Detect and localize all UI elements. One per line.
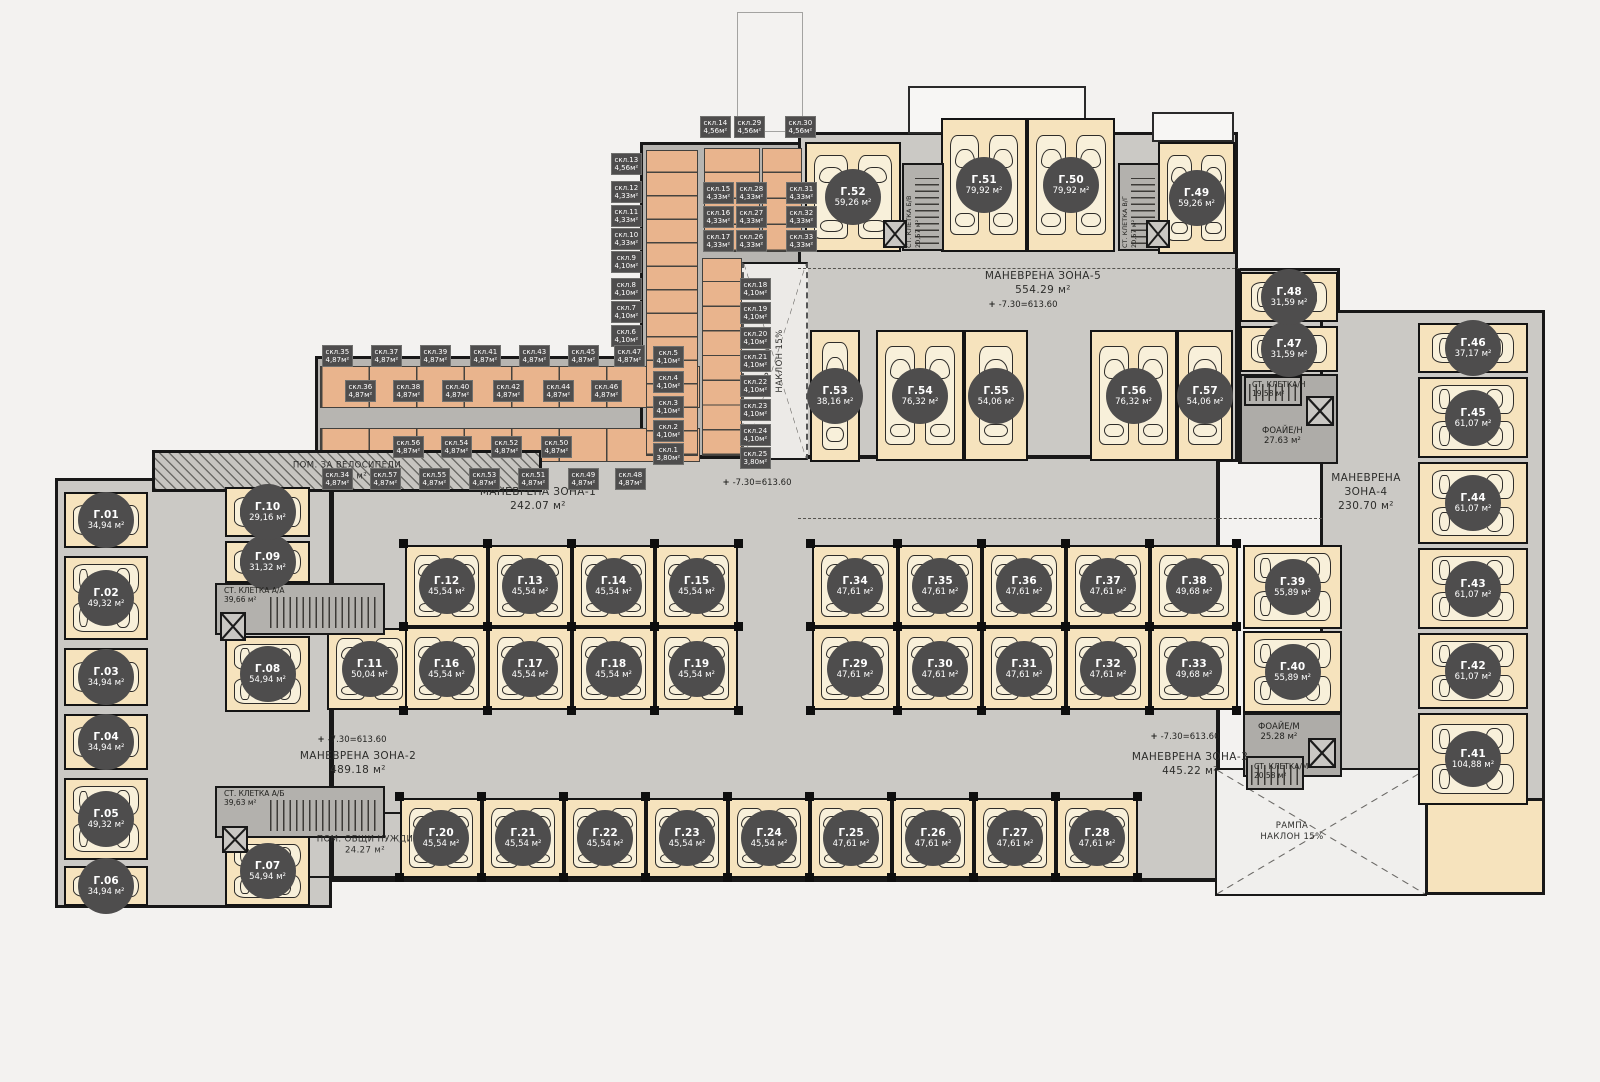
zone-label: МАНЕВРЕНА ЗОНА-5554.29 м² bbox=[985, 269, 1101, 297]
garage-label: Г.5554,06 м² bbox=[968, 368, 1024, 424]
garage-area: 47,61 м² bbox=[1006, 670, 1043, 680]
storage-id: скл.48 bbox=[619, 471, 643, 480]
storage-area: 4,87м² bbox=[545, 447, 569, 456]
garage-area: 59,26 м² bbox=[1178, 199, 1215, 209]
foyer-label-name: ФОАЙЕ/М bbox=[1258, 722, 1300, 732]
storage-tag: скл.24,10м² bbox=[653, 420, 684, 442]
storage-area: 4,87м² bbox=[374, 479, 398, 488]
garage-id: Г.04 bbox=[93, 731, 118, 743]
storage-tag: скл.364,87м² bbox=[345, 380, 376, 402]
garage-id: Г.36 bbox=[1011, 575, 1036, 587]
storage-id: скл.18 bbox=[744, 281, 768, 290]
garage-area: 47,61 м² bbox=[997, 839, 1034, 849]
zone-label-line: 230.70 м² bbox=[1331, 499, 1401, 513]
storage-tag: скл.354,87м² bbox=[322, 345, 353, 367]
garage-id: Г.30 bbox=[927, 658, 952, 670]
storage-tag: скл.554,87м² bbox=[419, 468, 450, 490]
storage-tag: скл.484,87м² bbox=[615, 468, 646, 490]
storage-tag: скл.564,87м² bbox=[393, 436, 424, 458]
stair-label-area: 19,58 м² bbox=[1252, 389, 1306, 398]
storage-id: скл.45 bbox=[572, 348, 596, 357]
garage-id: Г.35 bbox=[927, 575, 952, 587]
garage-id: Г.27 bbox=[1002, 827, 1027, 839]
foyer-label-area: 27.63 м² bbox=[1262, 436, 1303, 446]
storage-tag: скл.94,10м² bbox=[611, 251, 642, 273]
storage-id: скл.28 bbox=[740, 185, 764, 194]
garage-label: Г.0549,32 м² bbox=[78, 791, 134, 847]
garage-label: Г.3047,61 м² bbox=[912, 641, 968, 697]
storage-id: скл.12 bbox=[615, 184, 639, 193]
storage-tag: скл.74,10м² bbox=[611, 301, 642, 323]
garage-label: Г.4461,07 м² bbox=[1445, 475, 1501, 531]
floor-plan: РАМПА НАКЛОН 15%РАМПА НАКЛОН 15%ПОМ. ЗА … bbox=[0, 0, 1600, 1082]
garage-id: Г.38 bbox=[1181, 575, 1206, 587]
structural-column bbox=[567, 539, 576, 548]
garage-label: Г.2445,54 м² bbox=[741, 810, 797, 866]
storage-area: 3,80м² bbox=[744, 458, 768, 467]
garage-area: 47,61 м² bbox=[1090, 670, 1127, 680]
stair-label-name: СТ. КЛЕТКА А/Б bbox=[224, 789, 285, 798]
garage-area: 104,88 м² bbox=[1452, 760, 1494, 770]
storage-area: 4,33м² bbox=[615, 192, 639, 201]
storage-id: скл.33 bbox=[790, 233, 814, 242]
garage-area: 76,32 м² bbox=[902, 397, 939, 407]
storage-area: 4,33м² bbox=[707, 217, 731, 226]
garage-area: 38,16 м² bbox=[817, 397, 854, 407]
storage-id: скл.34 bbox=[326, 471, 350, 480]
garage-area: 59,26 м² bbox=[835, 198, 872, 208]
structural-column bbox=[723, 792, 732, 801]
storage-id: скл.9 bbox=[615, 254, 639, 263]
storage-id: скл.50 bbox=[545, 439, 569, 448]
foyer-label: ФОАЙЕ/М25.28 м² bbox=[1258, 722, 1300, 742]
stair-label-name: СТ. КЛЕТКА/Н bbox=[1252, 380, 1306, 389]
structural-column bbox=[1051, 792, 1060, 801]
storage-area: 4,56м² bbox=[615, 164, 639, 173]
garage-label: Г.5179,92 м² bbox=[956, 157, 1012, 213]
structural-column bbox=[1061, 622, 1070, 631]
room-label: ПОМ. ОБЩИ НУЖДИ24.27 м² bbox=[317, 835, 413, 856]
garage-area: 45,54 м² bbox=[423, 839, 460, 849]
garage-id: Г.53 bbox=[822, 385, 847, 397]
structural-column bbox=[969, 873, 978, 882]
structural-column bbox=[1232, 706, 1241, 715]
garage-id: Г.45 bbox=[1460, 407, 1485, 419]
elevation-mark: + -7.30=613.60 bbox=[318, 735, 387, 745]
structural-column bbox=[650, 706, 659, 715]
structural-column bbox=[977, 706, 986, 715]
storage-id: скл.8 bbox=[615, 281, 639, 290]
structural-column bbox=[723, 873, 732, 882]
storage-id: скл.46 bbox=[595, 383, 619, 392]
garage-area: 55,89 м² bbox=[1274, 588, 1311, 598]
garage-label: Г.3747,61 м² bbox=[1080, 558, 1136, 614]
storage-area: 4,10м² bbox=[744, 386, 768, 395]
garage-area: 34,94 м² bbox=[88, 521, 125, 531]
storage-area: 3,80м² bbox=[657, 454, 681, 463]
garage-area: 54,94 м² bbox=[249, 872, 286, 882]
garage-id: Г.48 bbox=[1276, 286, 1301, 298]
garage-id: Г.57 bbox=[1192, 385, 1217, 397]
structural-column bbox=[483, 539, 492, 548]
storage-tag: скл.34,10м² bbox=[653, 396, 684, 418]
structural-column bbox=[1133, 792, 1142, 801]
garage-label: Г.2647,61 м² bbox=[905, 810, 961, 866]
garage-label: Г.5259,26 м² bbox=[825, 169, 881, 225]
garage-id: Г.16 bbox=[434, 658, 459, 670]
structural-column bbox=[650, 539, 659, 548]
structural-column bbox=[1145, 706, 1154, 715]
storage-tag: скл.144,56м² bbox=[700, 116, 731, 138]
garage-area: 45,54 м² bbox=[751, 839, 788, 849]
stair-label-name: СТ. КЛЕТКА В/Г bbox=[1121, 166, 1130, 248]
stair-steps bbox=[270, 597, 378, 629]
storage-id: скл.15 bbox=[707, 185, 731, 194]
storage-area: 4,87м² bbox=[375, 356, 399, 365]
structural-column bbox=[806, 706, 815, 715]
storage-id: скл.17 bbox=[707, 233, 731, 242]
garage-area: 79,92 м² bbox=[966, 186, 1003, 196]
garage-label: Г.2245,54 м² bbox=[577, 810, 633, 866]
garage-label: Г.0931,32 м² bbox=[240, 534, 296, 590]
storage-tag: скл.374,87м² bbox=[371, 345, 402, 367]
garage-area: 49,68 м² bbox=[1176, 587, 1213, 597]
storage-area: 4,10м² bbox=[744, 410, 768, 419]
storage-tag: скл.84,10м² bbox=[611, 278, 642, 300]
storage-tag: скл.44,10м² bbox=[653, 371, 684, 393]
storage-area: 4,10м² bbox=[615, 289, 639, 298]
structural-column bbox=[969, 792, 978, 801]
garage-id: Г.29 bbox=[842, 658, 867, 670]
storage-tag: скл.224,10м² bbox=[740, 375, 771, 397]
slab bbox=[1425, 798, 1545, 895]
storage-area: 4,87м² bbox=[424, 356, 448, 365]
storage-tag: скл.394,87м² bbox=[420, 345, 451, 367]
storage-area: 4,33м² bbox=[615, 239, 639, 248]
storage-tag: скл.54,10м² bbox=[653, 346, 684, 368]
garage-id: Г.47 bbox=[1276, 338, 1301, 350]
garage-label: Г.41104,88 м² bbox=[1445, 731, 1501, 787]
storage-area: 4,87м² bbox=[572, 356, 596, 365]
garage-label: Г.2045,54 м² bbox=[413, 810, 469, 866]
storage-id: скл.14 bbox=[704, 119, 728, 128]
storage-area: 4,87м² bbox=[445, 447, 469, 456]
garage-label: Г.1845,54 м² bbox=[586, 641, 642, 697]
garage-id: Г.22 bbox=[592, 827, 617, 839]
elevator bbox=[1308, 738, 1336, 768]
structural-column bbox=[399, 539, 408, 548]
stair-steps bbox=[270, 800, 378, 832]
elevation-value: -7.30=613.60 bbox=[999, 300, 1058, 310]
garage-id: Г.01 bbox=[93, 509, 118, 521]
garage-label: Г.2547,61 м² bbox=[823, 810, 879, 866]
storage-area: 4,87м² bbox=[595, 391, 619, 400]
storage-id: скл.29 bbox=[738, 119, 762, 128]
garage-label: Г.0434,94 м² bbox=[78, 714, 134, 770]
structural-column bbox=[477, 792, 486, 801]
storage-id: скл.56 bbox=[397, 439, 421, 448]
stair-label: СТ. КЛЕТКА/М20,58 м² bbox=[1254, 762, 1308, 780]
stair-label: СТ. КЛЕТКА Б/В20,57 м² bbox=[905, 166, 923, 248]
storage-area: 4,33м² bbox=[740, 241, 764, 250]
storage-area: 4,87м² bbox=[523, 356, 547, 365]
storage-id: скл.16 bbox=[707, 209, 731, 218]
garage-area: 47,61 м² bbox=[922, 670, 959, 680]
storage-area: 4,33м² bbox=[707, 241, 731, 250]
garage-id: Г.03 bbox=[93, 666, 118, 678]
storage-id: скл.25 bbox=[744, 450, 768, 459]
storage-id: скл.42 bbox=[497, 383, 521, 392]
structural-column bbox=[1051, 873, 1060, 882]
stair-label-area: 20,57 м² bbox=[914, 166, 923, 248]
storage-area: 4,87м² bbox=[497, 391, 521, 400]
garage-area: 47,61 м² bbox=[833, 839, 870, 849]
structural-column bbox=[806, 622, 815, 631]
structural-column bbox=[806, 539, 815, 548]
room-label-name: ПОМ. ОБЩИ НУЖДИ bbox=[317, 835, 413, 846]
garage-id: Г.17 bbox=[517, 658, 542, 670]
stair-label-name: СТ. КЛЕТКА Б/В bbox=[905, 166, 914, 248]
storage-tag: скл.454,87м² bbox=[568, 345, 599, 367]
storage-tag: скл.134,56м² bbox=[611, 153, 642, 175]
storage-tag: скл.544,87м² bbox=[441, 436, 472, 458]
garage-id: Г.46 bbox=[1460, 337, 1485, 349]
storage-tag: скл.324,33м² bbox=[786, 206, 817, 228]
stair-label-area: 20,58 м² bbox=[1254, 771, 1308, 780]
benchmark-cross-icon: + bbox=[989, 300, 999, 310]
garage-area: 47,61 м² bbox=[1006, 587, 1043, 597]
storage-area: 4,87м² bbox=[572, 479, 596, 488]
storage-tag: скл.504,87м² bbox=[541, 436, 572, 458]
garage-label: Г.1245,54 м² bbox=[419, 558, 475, 614]
storage-area: 4,10м² bbox=[657, 431, 681, 440]
structural-column bbox=[641, 792, 650, 801]
storage-tag: скл.13,80м² bbox=[653, 443, 684, 465]
stair-label: СТ. КЛЕТКА А/Б39,63 м² bbox=[224, 789, 285, 807]
garage-area: 76,32 м² bbox=[1115, 397, 1152, 407]
storage-id: скл.27 bbox=[740, 209, 764, 218]
room-label-area: 24.27 м² bbox=[317, 845, 413, 856]
garage-id: Г.41 bbox=[1460, 748, 1485, 760]
garage-id: Г.54 bbox=[907, 385, 932, 397]
garage-id: Г.10 bbox=[255, 501, 280, 513]
storage-id: скл.57 bbox=[374, 471, 398, 480]
storage-area: 4,87м² bbox=[495, 447, 519, 456]
foyer-label-area: 25.28 м² bbox=[1258, 732, 1300, 742]
garage-label: Г.0634,94 м² bbox=[78, 858, 134, 914]
storage-id: скл.24 bbox=[744, 427, 768, 436]
zone-label-line: ЗОНА-4 bbox=[1331, 485, 1401, 499]
storage-area: 4,10м² bbox=[744, 435, 768, 444]
storage-area: 4,33м² bbox=[790, 193, 814, 202]
stair-label-area: 20,57 м² bbox=[1130, 166, 1139, 248]
storage-id: скл.10 bbox=[615, 231, 639, 240]
outline-structure bbox=[737, 12, 803, 132]
storage-tag: скл.344,87м² bbox=[322, 468, 353, 490]
garage-id: Г.15 bbox=[684, 575, 709, 587]
storage-tag: скл.314,33м² bbox=[786, 182, 817, 204]
garage-label: Г.1150,04 м² bbox=[342, 641, 398, 697]
storage-id: скл.55 bbox=[423, 471, 447, 480]
garage-label: Г.1545,54 м² bbox=[669, 558, 725, 614]
storage-tag: скл.414,87м² bbox=[470, 345, 501, 367]
garage-label: Г.3349,68 м² bbox=[1166, 641, 1222, 697]
stair-label-area: 39,63 м² bbox=[224, 798, 285, 807]
garage-area: 31,32 м² bbox=[249, 563, 286, 573]
structural-column bbox=[395, 873, 404, 882]
garage-area: 37,17 м² bbox=[1455, 349, 1492, 359]
elevation-mark: + -7.30=613.60 bbox=[723, 478, 792, 488]
storage-id: скл.7 bbox=[615, 304, 639, 313]
garage-id: Г.13 bbox=[517, 575, 542, 587]
storage-tag: скл.164,33м² bbox=[703, 206, 734, 228]
elevation-value: -7.30=613.60 bbox=[733, 478, 792, 488]
storage-area: 4,33м² bbox=[740, 217, 764, 226]
structural-column bbox=[395, 792, 404, 801]
elevator bbox=[220, 612, 246, 641]
garage-area: 54,06 м² bbox=[1187, 397, 1224, 407]
structural-column bbox=[977, 622, 986, 631]
zone-label-line: МАНЕВРЕНА ЗОНА-5 bbox=[985, 269, 1101, 283]
storage-tag: скл.184,10м² bbox=[740, 278, 771, 300]
storage-tag: скл.444,87м² bbox=[543, 380, 574, 402]
storage-tag: скл.274,33м² bbox=[736, 206, 767, 228]
garage-label: Г.4561,07 м² bbox=[1445, 390, 1501, 446]
stair-label-area: 39,66 м² bbox=[224, 595, 285, 604]
storage-id: скл.5 bbox=[657, 349, 681, 358]
storage-id: скл.3 bbox=[657, 399, 681, 408]
garage-area: 47,61 м² bbox=[837, 587, 874, 597]
garage-label: Г.5676,32 м² bbox=[1106, 368, 1162, 424]
garage-label: Г.4361,07 м² bbox=[1445, 561, 1501, 617]
garage-area: 79,92 м² bbox=[1053, 186, 1090, 196]
garage-area: 47,61 м² bbox=[837, 670, 874, 680]
garage-id: Г.09 bbox=[255, 551, 280, 563]
storage-cells bbox=[702, 258, 742, 456]
storage-tag: скл.244,10м² bbox=[740, 424, 771, 446]
garage-label: Г.4959,26 м² bbox=[1169, 170, 1225, 226]
elevator bbox=[222, 826, 248, 853]
storage-area: 4,10м² bbox=[657, 357, 681, 366]
storage-area: 4,87м² bbox=[618, 356, 642, 365]
storage-id: скл.43 bbox=[523, 348, 547, 357]
garage-id: Г.52 bbox=[840, 186, 865, 198]
garage-area: 45,54 м² bbox=[669, 839, 706, 849]
storage-area: 4,87м² bbox=[326, 479, 350, 488]
storage-id: скл.11 bbox=[615, 208, 639, 217]
garage-id: Г.14 bbox=[601, 575, 626, 587]
structural-column bbox=[399, 622, 408, 631]
storage-area: 4,10м² bbox=[657, 407, 681, 416]
garage-id: Г.11 bbox=[357, 658, 382, 670]
structural-column bbox=[893, 539, 902, 548]
storage-id: скл.22 bbox=[744, 378, 768, 387]
storage-tag: скл.464,87м² bbox=[591, 380, 622, 402]
storage-id: скл.6 bbox=[615, 328, 639, 337]
storage-id: скл.20 bbox=[744, 330, 768, 339]
garage-id: Г.40 bbox=[1280, 661, 1305, 673]
garage-label: Г.0754,94 м² bbox=[240, 843, 296, 899]
garage-area: 45,54 м² bbox=[512, 587, 549, 597]
storage-area: 4,87м² bbox=[423, 479, 447, 488]
garage-label: Г.4637,17 м² bbox=[1445, 320, 1501, 376]
storage-tag: скл.524,87м² bbox=[491, 436, 522, 458]
garage-label: Г.3849,68 м² bbox=[1166, 558, 1222, 614]
benchmark-cross-icon: + bbox=[723, 478, 733, 488]
structural-column bbox=[1061, 706, 1070, 715]
garage-label: Г.1445,54 м² bbox=[586, 558, 642, 614]
storage-area: 4,10м² bbox=[744, 289, 768, 298]
garage-label: Г.0854,94 м² bbox=[240, 646, 296, 702]
garage-area: 45,54 м² bbox=[595, 587, 632, 597]
storage-tag: скл.534,87м² bbox=[469, 468, 500, 490]
garage-id: Г.49 bbox=[1184, 187, 1209, 199]
structural-column bbox=[977, 539, 986, 548]
garage-id: Г.50 bbox=[1058, 174, 1083, 186]
structural-column bbox=[887, 873, 896, 882]
garage-area: 61,07 м² bbox=[1455, 672, 1492, 682]
storage-tag: скл.204,10м² bbox=[740, 327, 771, 349]
structural-column bbox=[399, 706, 408, 715]
storage-id: скл.40 bbox=[446, 383, 470, 392]
garage-id: Г.21 bbox=[510, 827, 535, 839]
structural-column bbox=[734, 622, 743, 631]
structural-column bbox=[1145, 622, 1154, 631]
garage-label: Г.5338,16 м² bbox=[807, 368, 863, 424]
storage-area: 4,56м² bbox=[704, 127, 728, 136]
garage-area: 31,59 м² bbox=[1271, 298, 1308, 308]
storage-area: 4,87м² bbox=[473, 479, 497, 488]
structural-column bbox=[477, 873, 486, 882]
storage-area: 4,56м² bbox=[738, 127, 762, 136]
garage-area: 49,68 м² bbox=[1176, 670, 1213, 680]
storage-area: 4,33м² bbox=[707, 193, 731, 202]
zone-label-line: 445.22 м² bbox=[1132, 764, 1248, 778]
garage-id: Г.51 bbox=[971, 174, 996, 186]
garage-label: Г.3447,61 м² bbox=[827, 558, 883, 614]
garage-label: Г.0249,32 м² bbox=[78, 570, 134, 626]
storage-area: 4,87м² bbox=[326, 356, 350, 365]
garage-id: Г.23 bbox=[674, 827, 699, 839]
structural-column bbox=[887, 792, 896, 801]
garage-area: 47,61 м² bbox=[1090, 587, 1127, 597]
garage-label: Г.3955,89 м² bbox=[1265, 559, 1321, 615]
garage-area: 61,07 м² bbox=[1455, 504, 1492, 514]
elevation-value: -7.30=613.60 bbox=[1161, 732, 1220, 742]
garage-area: 34,94 м² bbox=[88, 678, 125, 688]
storage-area: 4,10м² bbox=[615, 336, 639, 345]
structural-column bbox=[483, 706, 492, 715]
structural-column bbox=[893, 622, 902, 631]
structural-column bbox=[893, 706, 902, 715]
storage-tag: скл.334,33м² bbox=[786, 230, 817, 252]
garage-label: Г.2345,54 м² bbox=[659, 810, 715, 866]
ramp-label: РАМПА НАКЛОН 15% bbox=[1260, 821, 1323, 843]
structural-column bbox=[805, 873, 814, 882]
garage-area: 54,06 м² bbox=[978, 397, 1015, 407]
storage-area: 4,33м² bbox=[740, 193, 764, 202]
garage-id: Г.12 bbox=[434, 575, 459, 587]
structural-column bbox=[734, 706, 743, 715]
garage-area: 47,61 м² bbox=[922, 587, 959, 597]
garage-label: Г.3547,61 м² bbox=[912, 558, 968, 614]
garage-label: Г.4831,59 м² bbox=[1261, 269, 1317, 325]
zone-label-line: 489.18 м² bbox=[300, 763, 416, 777]
storage-tag: скл.384,87м² bbox=[393, 380, 424, 402]
storage-tag: скл.194,10м² bbox=[740, 302, 771, 324]
zone-label-line: МАНЕВРЕНА ЗОНА-2 bbox=[300, 749, 416, 763]
stair-label: СТ. КЛЕТКА В/Г20,57 м² bbox=[1121, 166, 1139, 248]
